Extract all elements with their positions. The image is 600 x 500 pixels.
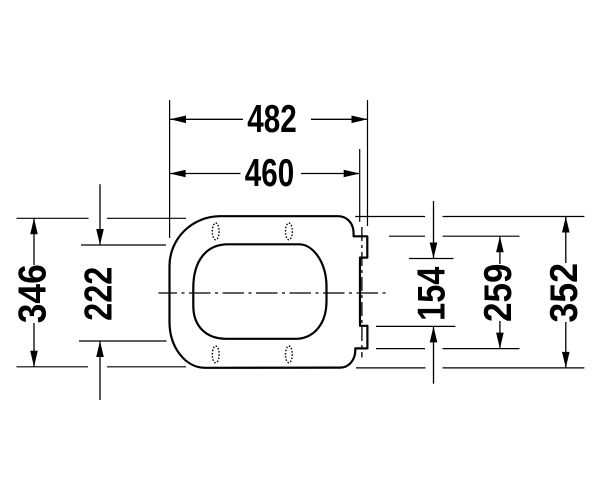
svg-text:482: 482 <box>247 98 296 141</box>
svg-text:222: 222 <box>77 267 120 321</box>
svg-text:460: 460 <box>245 152 294 195</box>
svg-text:259: 259 <box>476 264 519 322</box>
svg-text:154: 154 <box>410 266 453 320</box>
svg-text:352: 352 <box>542 263 585 323</box>
svg-text:346: 346 <box>11 264 54 323</box>
